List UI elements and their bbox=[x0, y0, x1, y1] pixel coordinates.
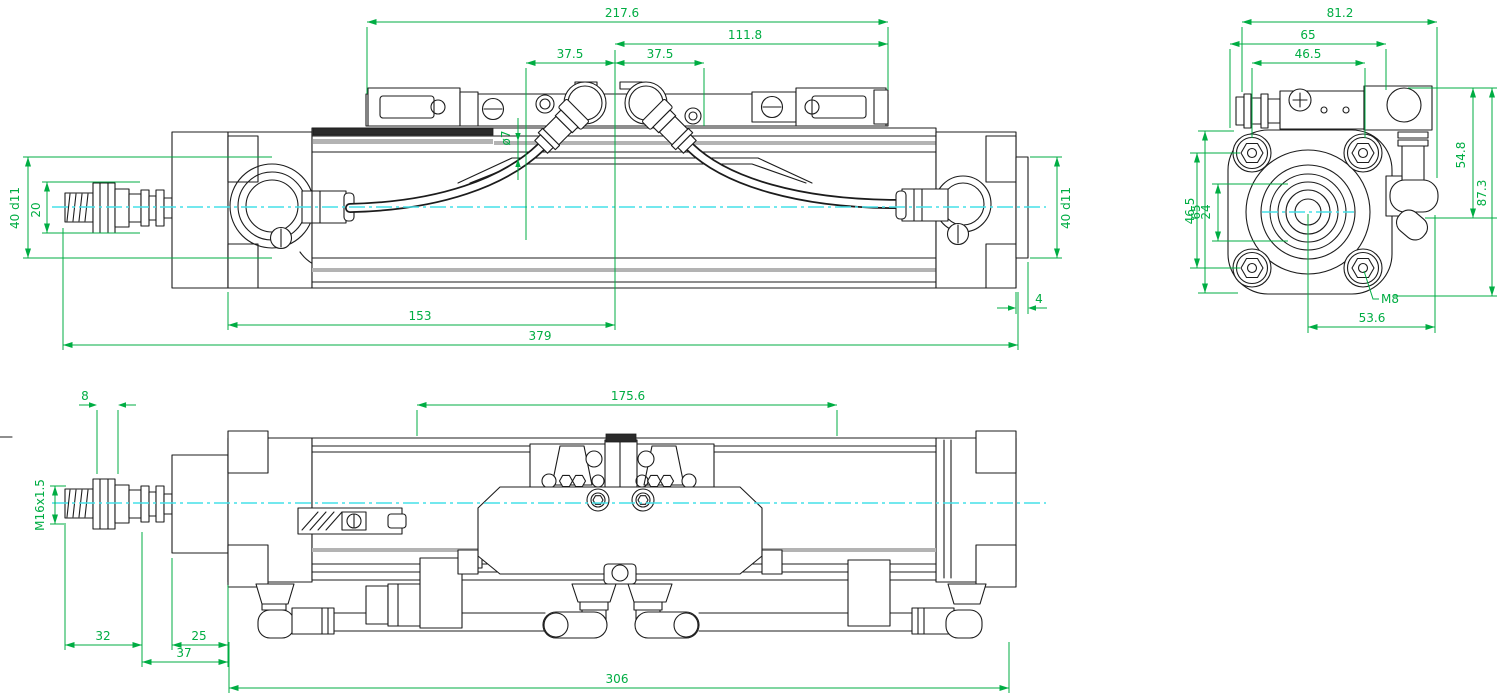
dim-span-right: 111.8 bbox=[728, 28, 762, 42]
front-flange-plate bbox=[172, 455, 228, 553]
front-view-art bbox=[1228, 86, 1438, 294]
dim-body-span: 175.6 bbox=[611, 389, 645, 403]
bolt-top-right bbox=[1344, 134, 1382, 172]
top-valve-assembly bbox=[1236, 86, 1432, 130]
side-elbow-fittings bbox=[1386, 132, 1438, 244]
dim-port-center-width: 53.6 bbox=[1359, 311, 1386, 325]
cad-drawing: 217.6 111.8 37.5 37.5 ø7 40 d11 20 40 d1… bbox=[0, 0, 1500, 700]
dim-nut-height: 8 bbox=[81, 389, 89, 403]
dim-rod-thread: M16x1.5 bbox=[33, 479, 47, 531]
bolt-bottom-right bbox=[1344, 249, 1382, 287]
front-flange-plate bbox=[172, 132, 228, 288]
dim-rod-dia: 20 bbox=[29, 202, 43, 217]
dim-overall-height: 87.3 bbox=[1475, 180, 1489, 207]
dim-hub-width: 24 bbox=[1199, 204, 1213, 219]
cap-screw-icon bbox=[948, 224, 969, 245]
position-sensor bbox=[298, 508, 406, 534]
dim-pitch-right: 37.5 bbox=[647, 47, 674, 61]
dim-flange-total: 37 bbox=[176, 646, 191, 660]
dim-pilot-right: 40 d11 bbox=[1059, 187, 1073, 229]
dim-step: 4 bbox=[1035, 292, 1043, 306]
dim-overall-length: 379 bbox=[529, 329, 552, 343]
dim-overall-length: 306 bbox=[606, 672, 629, 686]
side-view-art bbox=[65, 82, 1028, 288]
dim-bolt-pitch-h: 46.5 bbox=[1295, 47, 1322, 61]
dim-rod-extension: 32 bbox=[95, 629, 110, 643]
right-end-cap bbox=[936, 431, 1016, 587]
drawing-canvas: 217.6 111.8 37.5 37.5 ø7 40 d11 20 40 d1… bbox=[0, 0, 1500, 700]
dim-pitch-left: 37.5 bbox=[557, 47, 584, 61]
front-view: 81.2 65 46.5 54.8 87.3 46.5 65 24 M8 53 bbox=[1183, 6, 1497, 333]
dim-height-upper: 54.8 bbox=[1454, 142, 1468, 169]
side-view: 217.6 111.8 37.5 37.5 ø7 40 d11 20 40 d1… bbox=[8, 6, 1073, 350]
top-view: 8 175.6 M16x1.5 32 25 37 306 bbox=[0, 389, 1046, 693]
right-end-cap bbox=[935, 132, 1028, 288]
dim-port-dist: 153 bbox=[409, 309, 432, 323]
top-view-art bbox=[0, 431, 1016, 638]
right-port-elbow bbox=[896, 189, 948, 221]
dim-hose-od: ø7 bbox=[499, 131, 513, 146]
dim-overall-width: 81.2 bbox=[1327, 6, 1354, 20]
dim-body-width: 65 bbox=[1300, 28, 1315, 42]
cap-screw-icon bbox=[271, 228, 292, 249]
dim-bolt-thread: M8 bbox=[1381, 292, 1399, 306]
piston-rod bbox=[65, 479, 172, 529]
piston-rod bbox=[65, 183, 172, 233]
dim-span-ports: 217.6 bbox=[605, 6, 639, 20]
dim-flange-thickness: 25 bbox=[191, 629, 206, 643]
dim-pilot-left: 40 d11 bbox=[8, 187, 22, 229]
